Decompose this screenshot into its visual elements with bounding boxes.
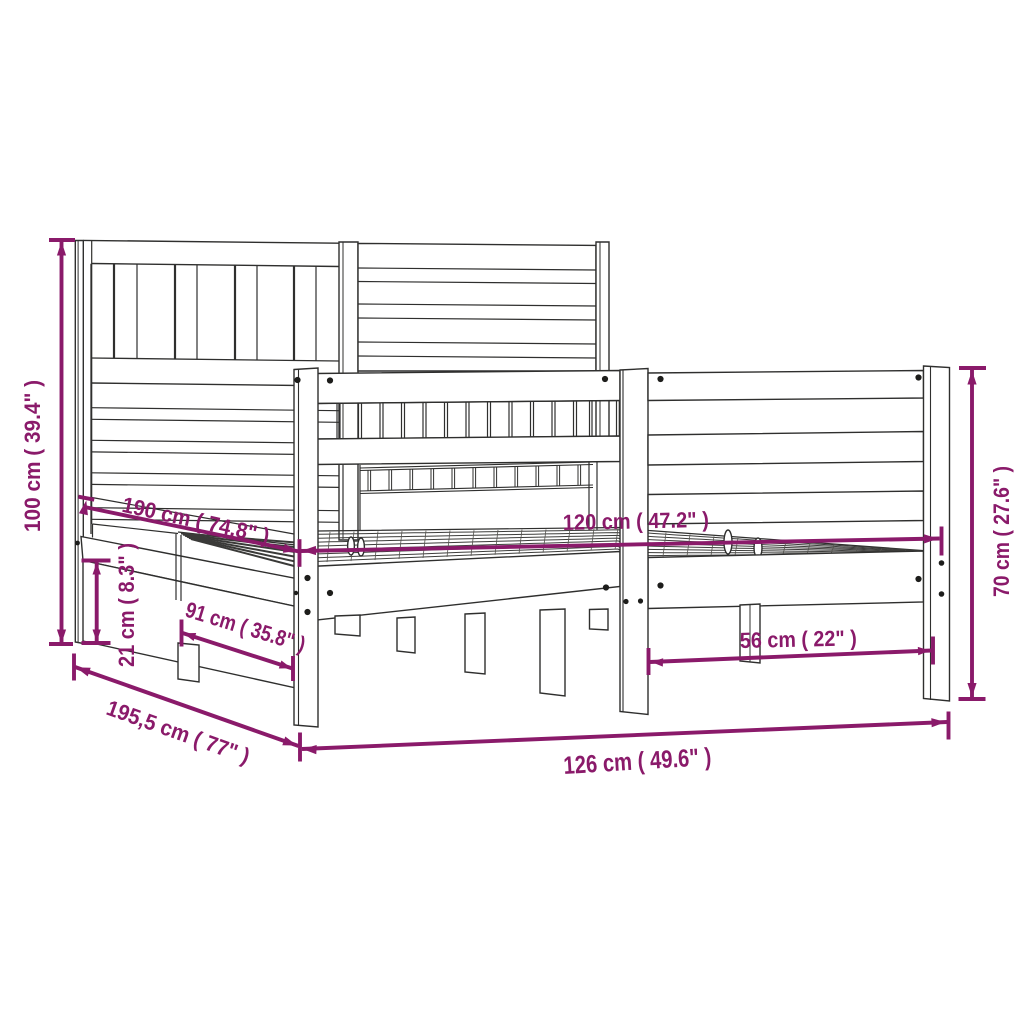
svg-text:120 cm ( 47.2" ): 120 cm ( 47.2" ) bbox=[563, 507, 709, 535]
svg-text:21 cm ( 8.3" ): 21 cm ( 8.3" ) bbox=[114, 543, 139, 667]
svg-text:100 cm ( 39.4" ): 100 cm ( 39.4" ) bbox=[20, 380, 45, 532]
svg-text:56 cm ( 22" ): 56 cm ( 22" ) bbox=[740, 625, 858, 653]
svg-text:70 cm ( 27.6" ): 70 cm ( 27.6" ) bbox=[989, 466, 1014, 597]
